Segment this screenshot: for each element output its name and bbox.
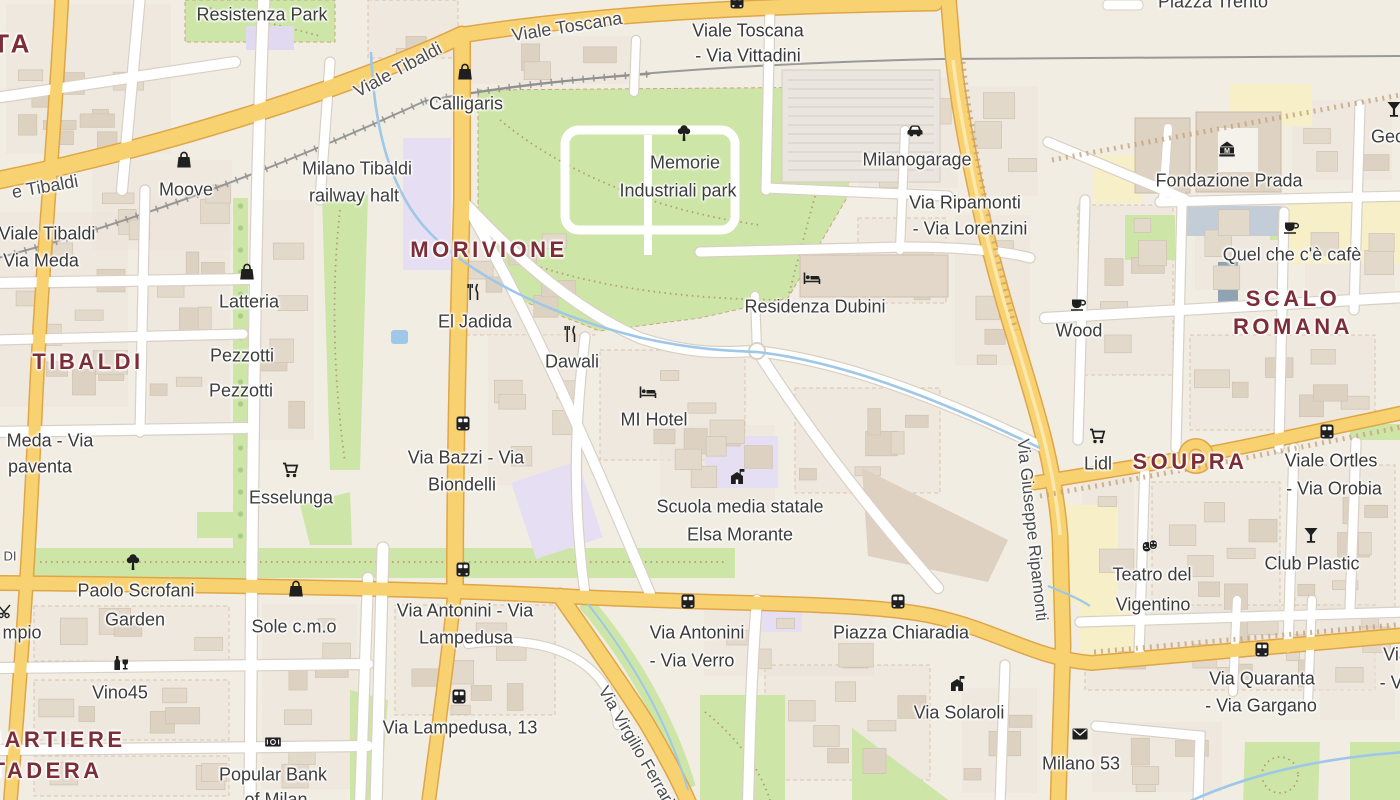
poi-label-wood: Wood	[1056, 321, 1103, 342]
school-icon[interactable]	[727, 467, 747, 487]
car-icon[interactable]	[905, 120, 925, 140]
bus-icon[interactable]	[727, 0, 747, 12]
poi-label-esselunga: Esselunga	[249, 488, 333, 509]
poi-label-memorie: Memorie	[650, 153, 720, 174]
poi-label-elsa-morante: Elsa Morante	[687, 525, 793, 546]
road-name-label-viale-toscana: Viale Toscana	[510, 8, 623, 46]
bag-icon[interactable]	[237, 262, 257, 282]
bus-icon[interactable]	[888, 592, 908, 612]
poi-label-pezzotti: Pezzotti	[210, 346, 274, 367]
district-label-stadera: STADERA	[0, 758, 103, 784]
district-label-soupra: SOUPRA	[1132, 449, 1247, 475]
cafe-icon[interactable]	[1068, 293, 1088, 313]
poi-label-residenza-dubini: Residenza Dubini	[744, 297, 885, 318]
road-name-label-e-tibaldi: e Tibaldi	[10, 171, 80, 203]
transit-stop-label-via-quaranta: Via Quaranta	[1209, 669, 1315, 690]
poi-label-garden: Garden	[105, 610, 165, 631]
transit-stop-label-via-meda: Via Meda	[3, 251, 79, 272]
museum-icon[interactable]: M	[1217, 139, 1237, 159]
cart-icon[interactable]	[280, 460, 300, 480]
poi-label-sole-c-m-o: Sole c.m.o	[251, 617, 336, 638]
transit-stop-label-via-bazzi-via: Via Bazzi - Via	[408, 448, 524, 469]
district-label-tibaldi: TIBALDI	[32, 349, 143, 375]
district-label-morivione: MORIVIONE	[410, 237, 567, 263]
bus-icon[interactable]	[453, 560, 473, 580]
bus-icon[interactable]	[449, 687, 469, 707]
poi-label-railway-halt: railway halt	[309, 186, 399, 207]
transit-stop-label-via-vittadini: - Via Vittadini	[695, 46, 800, 67]
transit-stop-label-via-orobia: - Via Orobia	[1286, 479, 1382, 500]
poi-label-mi-hotel: MI Hotel	[620, 410, 687, 431]
transit-stop-label-via-verro: - Via Verro	[650, 651, 735, 672]
bus-icon[interactable]	[1317, 422, 1337, 442]
transit-stop-label-via-lampedusa-13: Via Lampedusa, 13	[383, 718, 538, 739]
poi-label-milanogarage: Milanogarage	[862, 150, 971, 171]
transit-stop-label-viale-ortles: Viale Ortles	[1285, 451, 1378, 472]
transit-stop-label-via-ripamonti: Via Ripamonti	[909, 193, 1021, 214]
poi-label-of-milan: of Milan	[244, 790, 307, 800]
restaurant-icon[interactable]	[464, 282, 484, 302]
cocktail-icon[interactable]	[1301, 525, 1321, 545]
transit-stop-label-via: Via	[1383, 645, 1400, 666]
poi-label-moove: Moove	[159, 180, 213, 201]
poi-label-popular-bank: Popular Bank	[219, 765, 327, 786]
transit-stop-label-via: - Via	[1380, 673, 1400, 694]
district-label-scalo: SCALO	[1246, 286, 1341, 312]
poi-label-milano-53: Milano 53	[1042, 754, 1120, 775]
bed-icon[interactable]	[802, 268, 822, 288]
poi-label-pezzotti: Pezzotti	[209, 381, 273, 402]
transit-stop-label-via-lorenzini: - Via Lorenzini	[913, 219, 1028, 240]
svg-text:M: M	[1224, 148, 1230, 155]
bag-icon[interactable]	[455, 62, 475, 82]
poi-label-fondazione-prada: Fondazione Prada	[1155, 171, 1302, 192]
transit-stop-label-lampedusa: Lampedusa	[419, 628, 513, 649]
bag-icon[interactable]	[286, 579, 306, 599]
poi-label-calligaris: Calligaris	[429, 94, 503, 115]
school-icon[interactable]	[947, 674, 967, 694]
poi-label-scuola-media-statale: Scuola media statale	[656, 497, 823, 518]
poi-label-vigentino: Vigentino	[1116, 595, 1191, 616]
road-name-label-via-giuseppe-ripamonti: Via Giuseppe Ripamonti	[1012, 438, 1051, 622]
poi-label-teatro-del: Teatro del	[1112, 565, 1191, 586]
bag-icon[interactable]	[174, 150, 194, 170]
mail-icon[interactable]	[1070, 724, 1090, 744]
bus-icon[interactable]	[1252, 640, 1272, 660]
bank-icon[interactable]	[263, 732, 283, 752]
poi-label-mpio: mpio	[2, 623, 41, 644]
poi-label-geck: Geck	[1371, 127, 1400, 148]
poi-label-paolo-scrofani: Paolo Scrofani	[77, 581, 194, 602]
map-viewport[interactable]: TATIBALDIMORIVIONESCALOROMANASOUPRAQUART…	[0, 0, 1400, 800]
poi-label-vino45: Vino45	[92, 683, 148, 704]
cart-icon[interactable]	[1087, 426, 1107, 446]
poi-label-milano-tibaldi: Milano Tibaldi	[302, 159, 412, 180]
poi-label-latteria: Latteria	[219, 292, 279, 313]
transit-stop-label-viale-toscana: Viale Toscana	[692, 21, 803, 42]
road-name-label-via-virgilio-ferrari: Via Virgilio Ferrari	[594, 683, 679, 800]
transit-stop-label-viale-tibaldi: Viale Tibaldi	[0, 224, 95, 245]
poi-label-dawali: Dawali	[545, 352, 599, 373]
poi-label-industriali-park: Industriali park	[619, 181, 736, 202]
bus-icon[interactable]	[678, 592, 698, 612]
transit-stop-label-paventa: paventa	[8, 457, 72, 478]
poi-label-lidl: Lidl	[1084, 454, 1112, 475]
masks-icon[interactable]	[1140, 536, 1160, 556]
bus-icon[interactable]	[453, 414, 473, 434]
transit-stop-label-via-gargano: - Via Gargano	[1205, 696, 1317, 717]
district-label-quartiere: QUARTIERE	[0, 727, 126, 753]
wine-icon[interactable]	[111, 653, 131, 673]
cafe-icon[interactable]	[1281, 216, 1301, 236]
transit-stop-label-via-antonini: Via Antonini	[650, 623, 745, 644]
district-label-romana: ROMANA	[1233, 314, 1353, 340]
poi-label-quel-che-c-caf: Quel che c'è cafè	[1223, 245, 1362, 266]
poi-label-el-jadida: El Jadida	[438, 312, 512, 333]
transit-stop-label-meda-via: Meda - Via	[7, 431, 94, 452]
tree-icon[interactable]	[674, 123, 694, 143]
restaurant-icon[interactable]	[561, 324, 581, 344]
bed-icon[interactable]	[638, 382, 658, 402]
poi-label-piazza-trento: Piazza Trento	[1158, 0, 1268, 13]
transit-stop-label-piazza-chiaradia: Piazza Chiaradia	[833, 623, 969, 644]
transit-stop-label-biondelli: Biondelli	[428, 475, 496, 496]
poi-label-club-plastic: Club Plastic	[1264, 554, 1359, 575]
transit-stop-label-via-antonini-via: Via Antonini - Via	[397, 601, 533, 622]
cocktail-icon[interactable]	[1384, 99, 1400, 119]
road-name-label-di: DI	[4, 549, 17, 564]
map-labels-overlay: TATIBALDIMORIVIONESCALOROMANASOUPRAQUART…	[0, 0, 1400, 800]
poi-label-resistenza-park: Resistenza Park	[196, 5, 327, 26]
tree-icon[interactable]	[123, 552, 143, 572]
road-name-label-viale-tibaldi: Viale Tibaldi	[350, 38, 445, 102]
district-label-ta: TA	[0, 29, 33, 60]
poi-label-via-solaroli: Via Solaroli	[914, 703, 1005, 724]
scissors-icon[interactable]	[0, 601, 16, 621]
